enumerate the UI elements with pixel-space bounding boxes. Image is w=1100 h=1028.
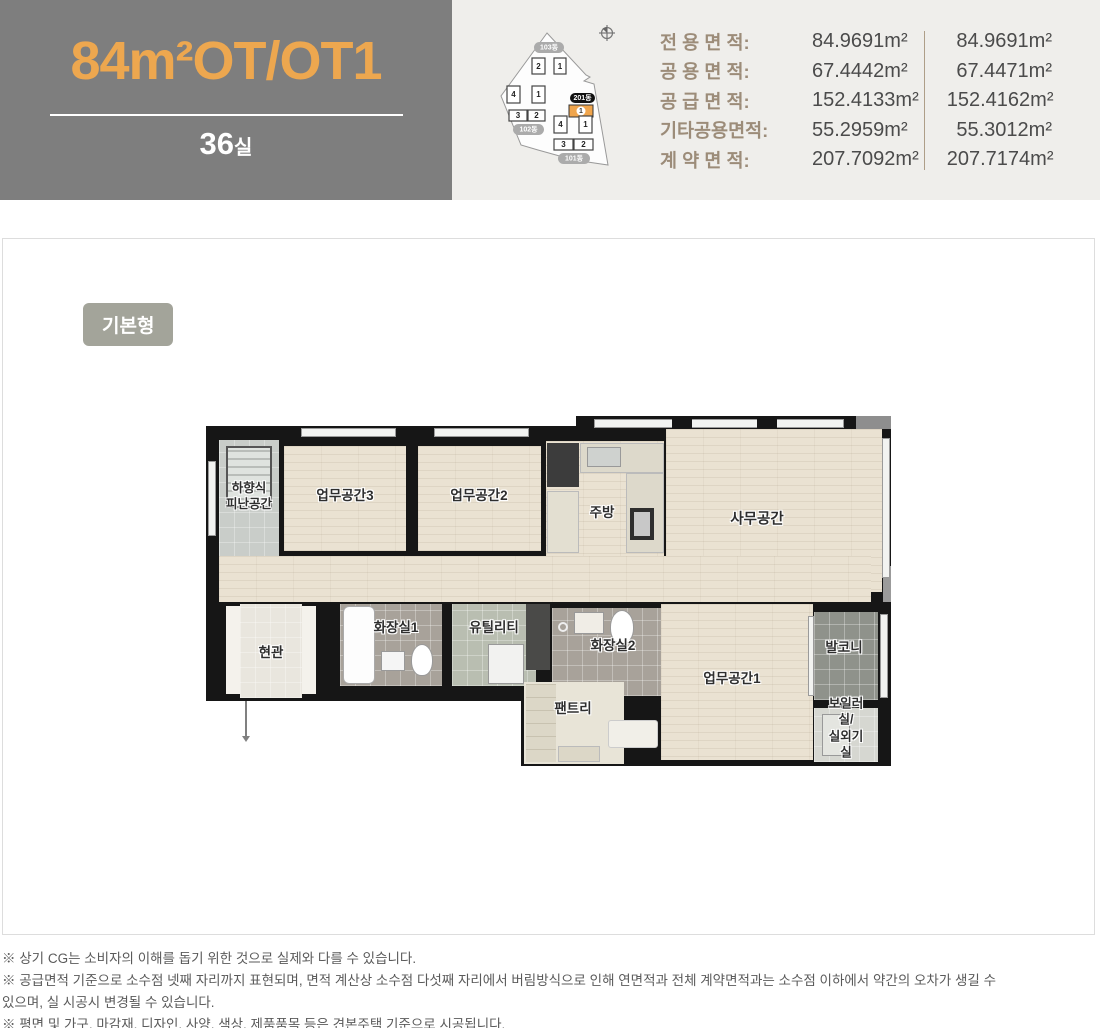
room-label-work3: 업무공간3 [316,487,373,505]
kitchen-cabinet-fixture [547,491,579,553]
svg-text:2: 2 [536,62,541,71]
entry-side-cabinet [302,606,316,694]
window [882,438,890,578]
window [434,428,529,437]
area-row-other-common: 기타공용면적: 55.2959m² 55.3012m² [660,116,1052,146]
room-label-work2: 업무공간2 [450,487,507,505]
room-label-bath2: 화장실2 [591,637,636,655]
svg-text:4: 4 [558,120,563,129]
window [808,616,814,696]
room-label-boiler: 보일러실/ 실외기실 [824,696,869,761]
compass-icon [599,25,615,41]
room-label-escape: 하향식 피난공간 [226,480,272,513]
unit-title: 84m²OT/OT1 [0,30,452,92]
area-value-2: 67.4471m² [936,60,1052,83]
area-value-1: 84.9691m² [812,30,908,53]
window [208,461,216,536]
washer-fixture [488,644,524,684]
svg-text:3: 3 [516,111,521,120]
room-label-pantry: 팬트리 [554,700,591,718]
room-count-number: 36 [200,126,234,161]
room-label-kitchen: 주방 [590,504,615,522]
sink-fixture [381,651,405,671]
area-table: 전 용 면 적: 84.9691m² 84.9691m² 공 용 면 적: 67… [660,27,1052,175]
svg-text:102동: 102동 [519,126,538,134]
cooktop-fixture-inner [634,512,650,536]
window [594,419,844,428]
area-value-1: 67.4442m² [812,60,908,83]
header: 84m²OT/OT1 36실 103동 2 1 [0,0,1100,200]
area-row-exclusive: 전 용 면 적: 84.9691m² 84.9691m² [660,27,1052,57]
area-row-common: 공 용 면 적: 67.4442m² 67.4471m² [660,57,1052,87]
svg-text:2: 2 [581,140,586,149]
area-value-2: 55.3012m² [936,119,1052,142]
svg-text:1: 1 [583,120,588,129]
svg-text:103동: 103동 [540,44,559,52]
fridge-fixture [547,443,579,487]
footnote: ※ 상기 CG는 소비자의 이해를 돕기 위한 것으로 실제와 다를 수 있습니… [2,948,1010,970]
site-map-diagram: 103동 2 1 4 1 3 2 102동 [490,18,655,183]
area-value-1: 55.2959m² [812,119,908,142]
footnotes: ※ 상기 CG는 소비자의 이해를 돕기 위한 것으로 실제와 다를 수 있습니… [2,948,1010,1028]
room-label-utility: 유틸리티 [469,619,519,637]
kitchen-sink-fixture [587,447,621,467]
room-label-work1: 업무공간1 [703,670,760,688]
svg-text:1: 1 [536,90,541,99]
type-badge: 기본형 [83,303,173,346]
duct-shaft [526,604,550,670]
window [301,428,396,437]
pantry-shelf-fixture [558,746,600,762]
area-label: 기타공용면적: [660,117,812,143]
room-label-entrance: 현관 [259,644,284,662]
unit-title-block: 84m²OT/OT1 36실 [0,0,452,200]
area-label: 공 급 면 적: [660,88,812,114]
area-value-1: 152.4133m² [812,89,919,112]
room-count-suffix: 실 [234,137,252,159]
corridor [219,556,871,602]
area-row-contract: 계 약 면 적: 207.7092m² 207.7174m² [660,145,1052,175]
title-divider [50,114,403,116]
area-value-2: 152.4162m² [947,89,1054,112]
area-value-2: 207.7174m² [947,148,1054,171]
page: 84m²OT/OT1 36실 103동 2 1 [0,0,1100,1028]
floor-mat-fixture [608,720,658,748]
area-label: 공 용 면 적: [660,58,812,84]
area-value-1: 207.7092m² [812,148,919,171]
svg-text:4: 4 [511,90,516,99]
toilet-fixture [411,644,433,676]
area-row-supply: 공 급 면 적: 152.4133m² 152.4162m² [660,86,1052,116]
svg-text:2: 2 [534,111,539,120]
svg-text:201동: 201동 [573,94,592,102]
entry-side-cabinet [226,606,240,694]
entrance-door-line [245,701,247,737]
room-label-bath1: 화장실1 [374,619,419,637]
floorplan-diagram: 하향식 피난공간 업무공간3 업무공간2 주방 사무공간 현관 화장실1 유틸리… [206,416,891,768]
svg-text:101동: 101동 [565,155,584,163]
area-label: 전 용 면 적: [660,29,812,55]
window-mullion [672,416,692,429]
room-label-balcony: 발코니 [825,639,862,657]
exterior-trim [856,416,891,429]
footnote: ※ 평면 및 가구, 마감재, 디자인, 사양, 색상, 제품품목 등은 견본주… [2,1014,1010,1028]
area-label: 계 약 면 적: [660,147,812,173]
site-building-201-highlighted: 201동 1 [569,93,595,117]
svg-text:1: 1 [579,108,583,115]
room-label-office: 사무공간 [730,511,783,530]
area-value-2: 84.9691m² [936,30,1052,53]
room-count: 36실 [0,126,452,162]
pantry-shelf-fixture [526,684,556,762]
svg-text:1: 1 [558,62,563,71]
shower-fixture [558,622,568,632]
sink-fixture [574,612,604,634]
entrance-door-arrow [242,736,250,742]
window-mullion [757,416,777,429]
window [880,614,888,698]
footnote: ※ 공급면적 기준으로 소수점 넷째 자리까지 표현되며, 면적 계산상 소수점… [2,970,1010,1014]
floorplan-panel: 기본형 [2,238,1095,935]
area-table-divider [924,31,925,170]
bathtub-fixture [343,606,375,684]
svg-text:3: 3 [561,140,566,149]
